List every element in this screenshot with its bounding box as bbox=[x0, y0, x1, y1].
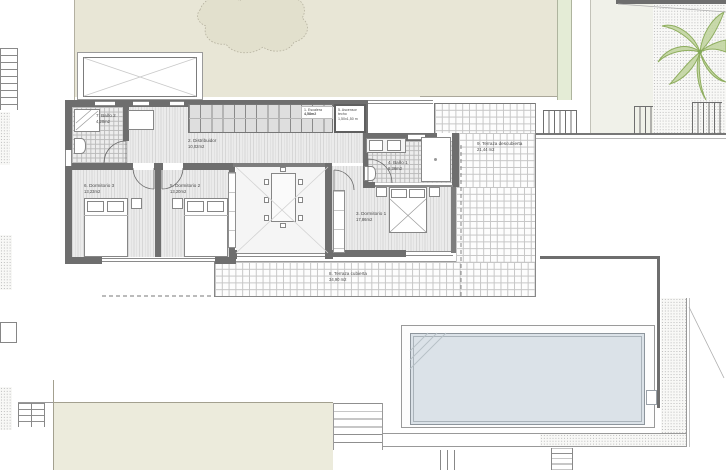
label-bano1: 4. Baño 1 6,36m2 bbox=[388, 160, 408, 171]
wall-master-right bbox=[451, 187, 456, 253]
open-terrace-a bbox=[435, 103, 536, 133]
pool-skimmer bbox=[646, 390, 657, 405]
terrace-edge-line-2 bbox=[536, 138, 726, 139]
glazing-top-right bbox=[368, 100, 433, 104]
dining-table bbox=[271, 173, 296, 222]
wall-void-stub-left bbox=[229, 250, 237, 259]
wall-bedrooms-top-c bbox=[183, 163, 229, 170]
wall-void-top bbox=[233, 163, 330, 167]
chair bbox=[298, 179, 303, 185]
glazing-bedrooms-south bbox=[102, 258, 215, 262]
label-distribuidor: 2. Distribuidor 10,02m2 bbox=[188, 138, 216, 149]
bottom-marks-a bbox=[440, 450, 441, 470]
terrace-outline-bottom bbox=[215, 296, 536, 297]
chair bbox=[280, 167, 286, 172]
pillow bbox=[107, 201, 124, 212]
chair bbox=[280, 223, 286, 228]
room-name: 6. Dormitorio 3 bbox=[84, 183, 114, 189]
room-name: 7. Baño 2 bbox=[96, 113, 116, 119]
room-area: 21,44 m2 bbox=[477, 147, 522, 152]
bottom-marks-a bbox=[454, 450, 455, 470]
pillow bbox=[207, 201, 224, 212]
wall-bano1-right bbox=[452, 133, 459, 187]
chair bbox=[298, 197, 303, 203]
site-wall-pool-top bbox=[540, 256, 660, 259]
chair bbox=[264, 179, 269, 185]
room-area: 17,86m2 bbox=[356, 217, 386, 222]
room-area: 34,90 m2 bbox=[329, 277, 367, 282]
room-area: 4,58m2 bbox=[302, 112, 332, 116]
room-area: 10,02m2 bbox=[188, 144, 216, 149]
deck-left-edge-ext bbox=[53, 380, 54, 402]
room-name: 2. Distribuidor bbox=[188, 138, 216, 144]
window-top-2 bbox=[133, 101, 149, 106]
wall-bedroom-divider-1 bbox=[155, 166, 161, 257]
pool-bottom-band-gravel bbox=[540, 434, 686, 446]
site-wall-pool-right bbox=[657, 256, 660, 408]
left-gravel-c bbox=[0, 387, 12, 430]
window-left bbox=[65, 150, 72, 166]
pillow bbox=[391, 189, 407, 198]
room-name: 8. Terraza cubierta bbox=[329, 271, 367, 277]
wardrobe-dormitorio2 bbox=[228, 172, 236, 248]
label-ascensor: 5. Ascensor techo 1,50x1,50 m bbox=[338, 108, 358, 121]
left-gravel-b bbox=[0, 235, 12, 290]
open-terrace-c bbox=[456, 187, 536, 262]
terrace-outline-left-strip bbox=[214, 262, 215, 297]
bed-line bbox=[84, 215, 128, 216]
terrace-strip-top bbox=[215, 261, 456, 262]
bottom-marks-a bbox=[447, 450, 448, 470]
nightstand bbox=[172, 198, 183, 209]
shower-drain-bano1 bbox=[434, 158, 437, 161]
bottom-ladder bbox=[551, 448, 573, 470]
wall-bottom-left bbox=[65, 257, 102, 264]
garden-left-edge bbox=[74, 0, 75, 100]
skylight-inner bbox=[83, 57, 197, 97]
left-gravel-a bbox=[0, 112, 10, 165]
nightstand bbox=[376, 187, 387, 197]
pillow bbox=[87, 201, 104, 212]
railing-3 bbox=[692, 102, 722, 134]
glazing-master-south bbox=[406, 251, 453, 256]
pool-right-border-1 bbox=[686, 298, 687, 447]
room-name: 3. Dormitorio 1 bbox=[356, 211, 386, 217]
wall-bedrooms-top-a bbox=[72, 163, 133, 170]
terrace-outline-top bbox=[435, 103, 536, 104]
railing-2 bbox=[634, 106, 653, 134]
pool-water-inner-line bbox=[413, 336, 642, 422]
room-area: 13,23m2 bbox=[84, 189, 114, 194]
room-area: 13,20m2 bbox=[170, 189, 200, 194]
garden-bottom-edge bbox=[420, 96, 568, 97]
terrace-outline-left bbox=[434, 103, 435, 133]
nightstand bbox=[131, 198, 142, 209]
closet-bano2 bbox=[128, 110, 154, 130]
room-name: 4. Baño 1 bbox=[388, 160, 408, 166]
label-bano2: 7. Baño 2 4,20m2 bbox=[96, 113, 116, 124]
glazing-void-south bbox=[233, 253, 325, 257]
room-size: 1,50x1,50 m bbox=[338, 117, 358, 121]
label-escalera-chip: 1. Escalera 4,58m2 bbox=[301, 106, 333, 119]
room-name: 5. Dormitorio 2 bbox=[170, 183, 200, 189]
gravel-pool-right bbox=[661, 298, 686, 447]
window-top-1 bbox=[95, 101, 115, 106]
room-name: 9. Terraza descubierta bbox=[477, 141, 522, 147]
sun-deck bbox=[53, 402, 333, 470]
pillow bbox=[409, 189, 425, 198]
wall-void-right bbox=[325, 163, 332, 257]
covered-terrace bbox=[215, 262, 536, 297]
bed-line bbox=[184, 215, 228, 216]
green-path-strip bbox=[557, 0, 572, 100]
pool-right-border-2 bbox=[689, 298, 690, 447]
toilet-bano2 bbox=[74, 138, 86, 154]
wall-left bbox=[65, 100, 72, 264]
left-planter-box bbox=[0, 322, 17, 343]
deck-stairs-right bbox=[333, 403, 383, 450]
label-terraza-descubierta: 9. Terraza descubierta 21,44 m2 bbox=[477, 141, 522, 152]
room-area: 4,20m2 bbox=[96, 119, 116, 124]
wall-bano1-bottom-stub bbox=[363, 182, 375, 188]
window-top-3 bbox=[170, 101, 184, 106]
label-dormitorio3: 6. Dormitorio 3 13,23m2 bbox=[84, 183, 114, 194]
room-area: 6,36m2 bbox=[388, 166, 408, 171]
pillow bbox=[187, 201, 204, 212]
sink-1-bano1 bbox=[369, 140, 383, 151]
chair bbox=[298, 215, 303, 221]
nightstand bbox=[429, 187, 440, 197]
railing-1 bbox=[543, 110, 577, 134]
chair bbox=[264, 215, 269, 221]
terrace-outline-right bbox=[535, 103, 536, 297]
sink-2-bano1 bbox=[387, 140, 401, 151]
wardrobe-dormitorio1 bbox=[333, 190, 345, 253]
label-dormitorio1: 3. Dormitorio 1 17,86m2 bbox=[356, 211, 386, 222]
left-exterior-stairs bbox=[0, 48, 18, 110]
chair bbox=[264, 197, 269, 203]
label-terraza-cubierta: 8. Terraza cubierta 34,90 m2 bbox=[329, 271, 367, 282]
deck-steps-left-rail bbox=[31, 403, 32, 427]
label-dormitorio2: 5. Dormitorio 2 13,20m2 bbox=[170, 183, 200, 194]
toilet-bano1 bbox=[364, 166, 376, 181]
floor-plan: 7. Baño 2 4,20m2 2. Distribuidor 10,02m2… bbox=[0, 0, 726, 470]
